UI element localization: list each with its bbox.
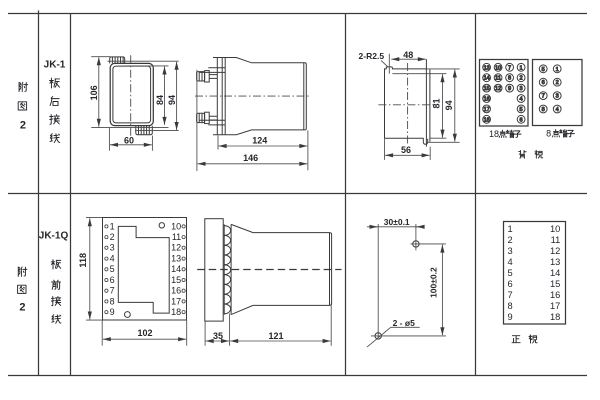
svg-text:9: 9 xyxy=(110,307,115,317)
svg-text:11: 11 xyxy=(495,76,501,82)
svg-text:5: 5 xyxy=(110,264,115,274)
svg-text:18: 18 xyxy=(484,117,490,123)
svg-text:3: 3 xyxy=(508,246,513,256)
svg-text:13: 13 xyxy=(550,257,560,267)
svg-text:10: 10 xyxy=(550,224,560,234)
svg-text:146: 146 xyxy=(243,153,258,163)
svg-text:11: 11 xyxy=(172,232,181,242)
svg-text:15: 15 xyxy=(484,86,490,92)
svg-text:4: 4 xyxy=(110,254,115,264)
svg-text:JK-1: JK-1 xyxy=(44,59,66,70)
svg-text:JK-1Q: JK-1Q xyxy=(39,231,69,242)
svg-text:7: 7 xyxy=(508,65,511,71)
svg-text:9: 9 xyxy=(508,312,513,322)
svg-text:8: 8 xyxy=(110,296,115,306)
svg-text:2: 2 xyxy=(20,119,26,131)
svg-text:121: 121 xyxy=(268,331,283,341)
svg-text:81: 81 xyxy=(431,98,441,108)
svg-text:6: 6 xyxy=(110,275,115,285)
svg-text:124: 124 xyxy=(252,135,267,145)
svg-text:15: 15 xyxy=(550,279,560,289)
svg-text:2: 2 xyxy=(110,232,115,242)
svg-text:8: 8 xyxy=(508,301,513,311)
svg-text:12: 12 xyxy=(171,243,181,253)
svg-text:7: 7 xyxy=(542,94,545,100)
svg-text:6: 6 xyxy=(542,80,545,86)
svg-text:18: 18 xyxy=(550,312,560,322)
svg-text:16: 16 xyxy=(484,97,490,103)
svg-text:5: 5 xyxy=(542,67,545,73)
svg-text:84: 84 xyxy=(155,95,165,105)
svg-text:12: 12 xyxy=(550,246,560,256)
svg-text:2: 2 xyxy=(520,76,523,82)
svg-text:4: 4 xyxy=(508,257,513,267)
svg-text:4: 4 xyxy=(556,107,559,113)
svg-text:3: 3 xyxy=(110,243,115,253)
svg-text:11: 11 xyxy=(551,235,561,245)
svg-text:14: 14 xyxy=(484,76,490,82)
svg-text:2-R2.5: 2-R2.5 xyxy=(359,51,385,61)
svg-text:18: 18 xyxy=(171,307,181,317)
svg-text:2: 2 xyxy=(556,80,559,86)
svg-text:16: 16 xyxy=(171,286,181,296)
svg-text:18: 18 xyxy=(489,129,499,139)
svg-text:14: 14 xyxy=(171,264,181,274)
svg-text:1: 1 xyxy=(508,224,513,234)
svg-text:2: 2 xyxy=(19,301,25,313)
svg-text:3: 3 xyxy=(520,86,523,92)
svg-text:10: 10 xyxy=(171,221,181,231)
svg-text:2: 2 xyxy=(508,235,513,245)
svg-text:15: 15 xyxy=(171,275,181,285)
svg-text:106: 106 xyxy=(89,85,99,100)
svg-text:1: 1 xyxy=(556,67,559,73)
svg-text:10: 10 xyxy=(495,65,501,71)
svg-text:2 - ø5: 2 - ø5 xyxy=(393,318,415,328)
svg-text:13: 13 xyxy=(484,65,490,71)
svg-text:17: 17 xyxy=(550,301,560,311)
svg-text:56: 56 xyxy=(401,145,411,155)
svg-text:30±0.1: 30±0.1 xyxy=(384,217,410,227)
svg-text:14: 14 xyxy=(550,268,560,278)
svg-text:17: 17 xyxy=(484,107,490,113)
svg-text:94: 94 xyxy=(167,95,177,105)
svg-text:94: 94 xyxy=(444,100,454,110)
svg-text:8: 8 xyxy=(542,107,545,113)
svg-text:9: 9 xyxy=(508,86,511,92)
svg-text:48: 48 xyxy=(403,50,413,60)
svg-text:6: 6 xyxy=(520,117,523,123)
svg-text:5: 5 xyxy=(520,107,523,113)
svg-text:6: 6 xyxy=(508,279,513,289)
svg-text:118: 118 xyxy=(78,253,88,268)
svg-text:1: 1 xyxy=(520,65,523,71)
svg-text:35: 35 xyxy=(213,331,223,341)
svg-text:5: 5 xyxy=(508,268,513,278)
svg-text:3: 3 xyxy=(556,94,559,100)
svg-text:102: 102 xyxy=(137,328,152,338)
svg-text:16: 16 xyxy=(550,290,560,300)
svg-text:7: 7 xyxy=(110,286,115,296)
svg-text:17: 17 xyxy=(171,296,181,306)
svg-text:8: 8 xyxy=(546,128,551,138)
svg-text:60: 60 xyxy=(124,136,134,146)
svg-text:4: 4 xyxy=(520,97,523,103)
svg-text:13: 13 xyxy=(171,254,181,264)
svg-text:7: 7 xyxy=(508,290,513,300)
svg-text:8: 8 xyxy=(508,76,511,82)
svg-text:1: 1 xyxy=(110,221,115,231)
svg-text:100±0.2: 100±0.2 xyxy=(428,267,438,298)
svg-text:12: 12 xyxy=(495,86,501,92)
